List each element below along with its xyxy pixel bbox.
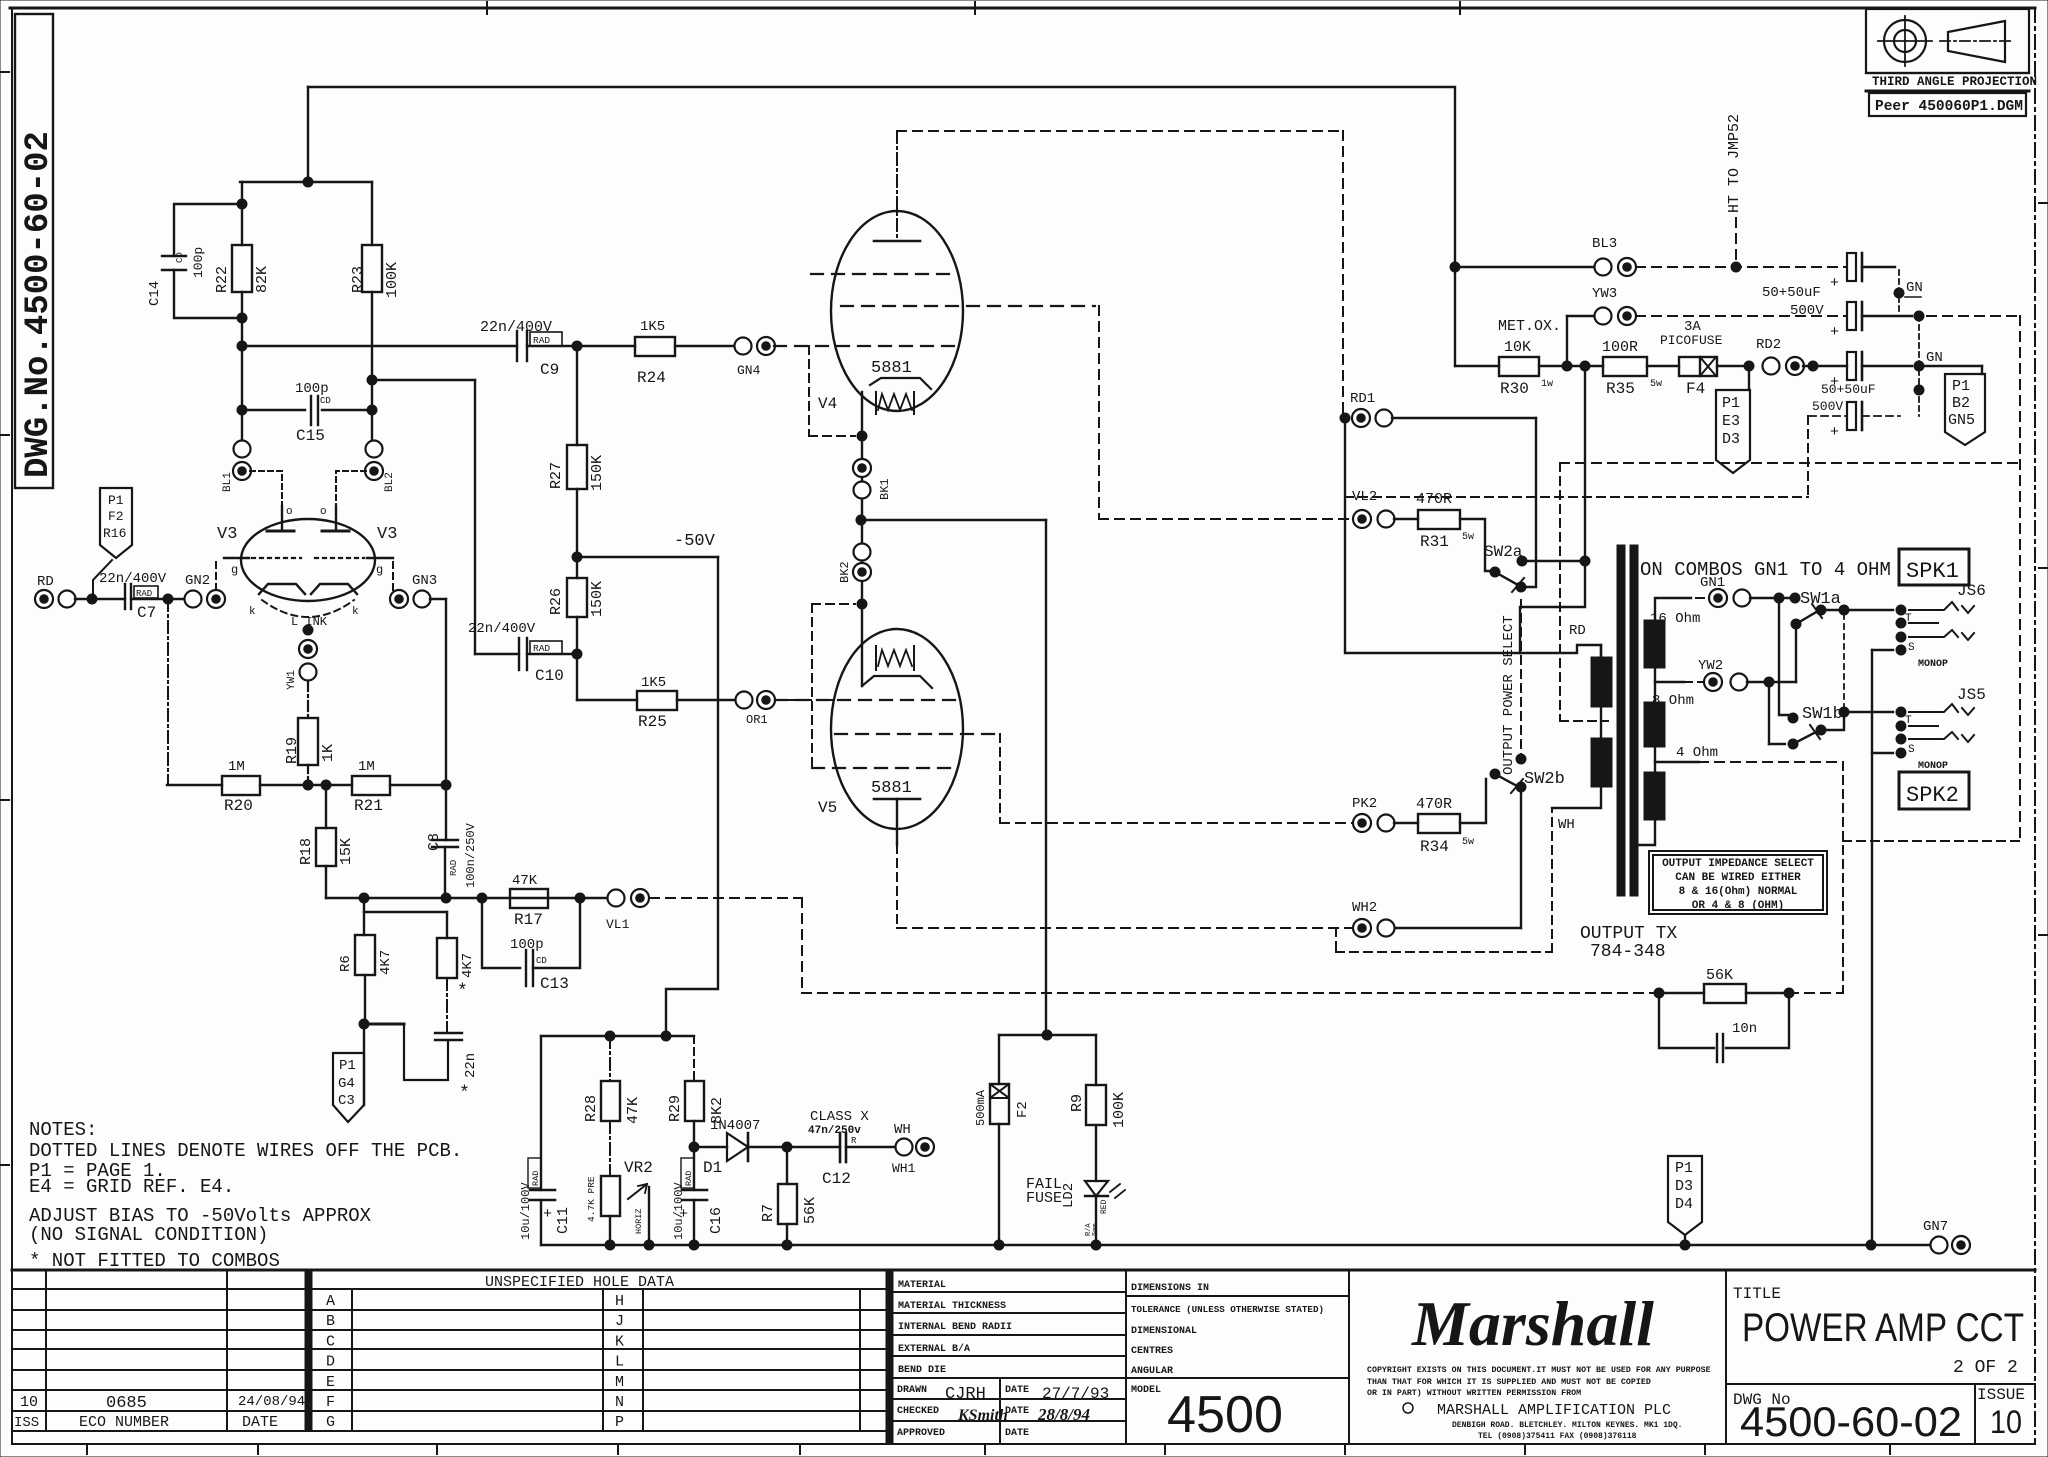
svg-text:RD2: RD2 [1756, 337, 1781, 353]
svg-text:HORIZ: HORIZ [634, 1208, 644, 1234]
svg-text:500mA: 500mA [974, 1089, 988, 1126]
svg-text:R17: R17 [514, 911, 543, 929]
svg-text:INTERNAL BEND RADII: INTERNAL BEND RADII [898, 1322, 1012, 1333]
svg-text:NOTES:: NOTES: [29, 1119, 97, 1141]
svg-text:DRAWN: DRAWN [897, 1385, 927, 1396]
svg-text:VL2: VL2 [1352, 489, 1377, 505]
svg-text:5w: 5w [1650, 379, 1662, 390]
svg-text:22n/400V: 22n/400V [468, 621, 536, 637]
svg-text:1M: 1M [228, 759, 245, 775]
svg-text:MARSHALL AMPLIFICATION PLC: MARSHALL AMPLIFICATION PLC [1437, 1402, 1671, 1419]
svg-text:150K: 150K [589, 455, 606, 491]
svg-text:OR 4 & 8 (OHM): OR 4 & 8 (OHM) [1692, 900, 1784, 912]
svg-text:MONOP: MONOP [1918, 761, 1948, 772]
svg-text:C12: C12 [822, 1170, 851, 1188]
svg-text:CD: CD [175, 252, 185, 263]
svg-text:100p: 100p [510, 937, 544, 953]
svg-text:GN2: GN2 [185, 573, 210, 589]
svg-text:22n/400V: 22n/400V [99, 571, 167, 587]
svg-text:C14: C14 [147, 281, 163, 306]
svg-text:DATE: DATE [1005, 1385, 1029, 1396]
svg-text:OUTPUT IMPEDANCE SELECT: OUTPUT IMPEDANCE SELECT [1662, 858, 1814, 870]
svg-text:GN7: GN7 [1923, 1219, 1948, 1235]
svg-text:100R: 100R [1602, 339, 1638, 356]
svg-text:24/08/94: 24/08/94 [238, 1394, 305, 1410]
svg-text:EXTERNAL B/A: EXTERNAL B/A [898, 1343, 970, 1355]
svg-text:COPYRIGHT EXISTS ON THIS DOCUM: COPYRIGHT EXISTS ON THIS DOCUMENT.IT MUS… [1367, 1366, 1711, 1375]
svg-text:UNSPECIFIED HOLE DATA: UNSPECIFIED HOLE DATA [485, 1274, 674, 1291]
svg-text:50+50uF: 50+50uF [1762, 285, 1821, 301]
svg-text:FUSE: FUSE [1026, 1190, 1062, 1207]
svg-text:P1: P1 [339, 1058, 356, 1074]
svg-text:C8: C8 [426, 833, 443, 851]
svg-text:ISS: ISS [14, 1415, 39, 1431]
svg-text:50+50uF: 50+50uF [1821, 382, 1876, 397]
svg-text:+: + [1830, 275, 1839, 292]
svg-text:CAN BE WIRED EITHER: CAN BE WIRED EITHER [1675, 872, 1801, 884]
svg-text:R35: R35 [1606, 380, 1635, 398]
svg-text:g: g [231, 563, 238, 577]
svg-text:SPK2: SPK2 [1906, 783, 1959, 808]
svg-text:TEL (0908)375411 FAX (0908)376: TEL (0908)375411 FAX (0908)376118 [1478, 1432, 1637, 1441]
svg-text:MONOP: MONOP [1918, 659, 1948, 670]
svg-text:R21: R21 [354, 797, 383, 815]
svg-text:22n: 22n [463, 1053, 479, 1078]
svg-text:WH: WH [894, 1122, 911, 1138]
svg-text:10K: 10K [1504, 339, 1531, 356]
svg-text:VL1: VL1 [606, 917, 630, 932]
svg-text:R9: R9 [1069, 1094, 1086, 1112]
svg-text:k: k [352, 606, 359, 618]
svg-text:ISSUE: ISSUE [1977, 1386, 2025, 1404]
svg-text:F2: F2 [1015, 1101, 1031, 1118]
svg-text:RAD: RAD [449, 860, 459, 876]
svg-text:ECO NUMBER: ECO NUMBER [79, 1414, 169, 1431]
svg-text:R23: R23 [350, 266, 367, 293]
svg-text:WH1: WH1 [892, 1161, 916, 1176]
svg-text:10: 10 [20, 1394, 38, 1411]
svg-text:82K: 82K [254, 266, 271, 293]
svg-text:V3: V3 [377, 525, 397, 544]
svg-text:o: o [286, 506, 293, 518]
svg-text:C: C [326, 1333, 335, 1350]
svg-text:B: B [326, 1313, 335, 1330]
svg-text:T: T [1905, 715, 1912, 727]
svg-text:PICOFUSE: PICOFUSE [1660, 333, 1723, 348]
svg-text:C16: C16 [708, 1207, 725, 1234]
svg-text:MET.OX.: MET.OX. [1498, 318, 1561, 335]
svg-text:V5: V5 [818, 799, 837, 817]
svg-text:TOLERANCE (UNLESS OTHERWISE ST: TOLERANCE (UNLESS OTHERWISE STATED) [1131, 1304, 1324, 1315]
svg-text:R20: R20 [224, 797, 253, 815]
svg-text:R29: R29 [667, 1095, 684, 1122]
svg-text:G4: G4 [338, 1076, 355, 1092]
svg-text:1K5: 1K5 [640, 319, 665, 335]
svg-text:DENBIGH ROAD. BLETCHLEY. MILTO: DENBIGH ROAD. BLETCHLEY. MILTON KEYNES. … [1452, 1421, 1682, 1430]
svg-text:ANGULAR: ANGULAR [1131, 1366, 1173, 1377]
svg-text:GN4: GN4 [737, 363, 761, 378]
svg-text:R24: R24 [637, 369, 666, 387]
svg-text:100p: 100p [191, 247, 206, 278]
svg-text:SW1b: SW1b [1802, 705, 1843, 724]
svg-text:16 Ohm: 16 Ohm [1650, 611, 1700, 627]
svg-text:5w: 5w [1462, 532, 1474, 543]
svg-text:E4 = GRID REF. E4.: E4 = GRID REF. E4. [29, 1176, 234, 1198]
svg-text:*: * [457, 982, 468, 1002]
svg-text:CLASS X: CLASS X [810, 1109, 869, 1125]
svg-text:GN5: GN5 [1948, 412, 1975, 429]
svg-text:R22: R22 [214, 266, 231, 293]
svg-text:g: g [376, 563, 383, 577]
svg-text:OR IN PART) WITHOUT WRITTEN PE: OR IN PART) WITHOUT WRITTEN PERMISSION F… [1367, 1388, 1581, 1398]
svg-text:56K: 56K [802, 1197, 819, 1224]
svg-text:V3: V3 [217, 525, 237, 544]
svg-text:M: M [615, 1374, 624, 1391]
svg-text:BK1: BK1 [878, 478, 892, 500]
svg-text:YW3: YW3 [1592, 286, 1617, 302]
svg-text:YW2: YW2 [1698, 658, 1723, 674]
svg-text:100K: 100K [384, 262, 401, 298]
svg-text:R18: R18 [298, 838, 315, 865]
svg-text:P1: P1 [1675, 1160, 1693, 1177]
svg-text:56K: 56K [1706, 967, 1733, 984]
svg-text:RD: RD [37, 574, 54, 590]
svg-text:47K: 47K [512, 873, 538, 889]
svg-text:C13: C13 [540, 975, 569, 993]
svg-text:THIRD ANGLE PROJECTION: THIRD ANGLE PROJECTION [1872, 75, 2037, 89]
svg-text:1M: 1M [358, 759, 375, 775]
svg-text:DOTTED LINES DENOTE WIRES OFF: DOTTED LINES DENOTE WIRES OFF THE PCB. [29, 1140, 462, 1162]
svg-text:10u/100V: 10u/100V [672, 1182, 686, 1240]
svg-text:PK2: PK2 [1352, 796, 1377, 812]
svg-text:JS6: JS6 [1957, 582, 1986, 600]
svg-text:WH2: WH2 [1352, 900, 1377, 916]
svg-text:5881: 5881 [871, 779, 912, 798]
svg-text:4K7: 4K7 [378, 950, 394, 975]
svg-text:SW2a: SW2a [1484, 543, 1523, 561]
svg-text:C3: C3 [338, 1093, 355, 1109]
svg-text:28/8/94: 28/8/94 [1037, 1405, 1090, 1424]
svg-text:CD: CD [536, 956, 547, 966]
svg-text:+: + [1830, 424, 1839, 441]
svg-text:TITLE: TITLE [1733, 1285, 1781, 1303]
svg-text:SW2b: SW2b [1524, 770, 1565, 789]
svg-text:4500: 4500 [1167, 1386, 1283, 1444]
svg-text:R34: R34 [1420, 838, 1449, 856]
svg-text:R30: R30 [1500, 380, 1529, 398]
svg-text:OUTPUT POWER SELECT: OUTPUT POWER SELECT [1501, 615, 1517, 775]
svg-text:100K: 100K [1111, 1092, 1128, 1128]
svg-text:8 Ohm: 8 Ohm [1652, 693, 1694, 709]
svg-text:D1: D1 [703, 1159, 722, 1177]
svg-text:T: T [1905, 613, 1912, 625]
svg-text:R6: R6 [338, 955, 354, 972]
svg-text:C15: C15 [296, 427, 325, 445]
svg-text:R28: R28 [583, 1095, 600, 1122]
svg-text:P1: P1 [1722, 395, 1740, 412]
svg-text:2 OF 2: 2 OF 2 [1953, 1358, 2018, 1378]
svg-text:4K7: 4K7 [460, 953, 476, 978]
svg-text:DIMENSIONAL: DIMENSIONAL [1131, 1326, 1197, 1337]
svg-text:RAD: RAD [533, 643, 550, 654]
svg-text:5mm: 5mm [1092, 1223, 1100, 1236]
svg-text:P1: P1 [1952, 378, 1970, 395]
svg-text:Marshall: Marshall [1411, 1288, 1654, 1359]
svg-text:100p: 100p [295, 381, 329, 397]
svg-text:LD2: LD2 [1061, 1183, 1077, 1208]
svg-text:10: 10 [1990, 1404, 2022, 1440]
svg-text:D: D [326, 1354, 335, 1371]
svg-text:POWER AMP CCT: POWER AMP CCT [1742, 1306, 2024, 1350]
svg-text:R31: R31 [1420, 533, 1449, 551]
svg-text:B2: B2 [1952, 395, 1970, 412]
svg-text:10u/100V: 10u/100V [519, 1182, 533, 1240]
svg-text:A: A [326, 1293, 335, 1310]
svg-text:150K: 150K [589, 581, 606, 617]
svg-text:F2: F2 [108, 509, 124, 524]
svg-text:C10: C10 [535, 667, 564, 685]
svg-text:GN: GN [1906, 280, 1923, 296]
svg-text:P1: P1 [108, 493, 124, 508]
svg-text:(NO SIGNAL CONDITION): (NO SIGNAL CONDITION) [29, 1224, 268, 1246]
svg-text:CJRH: CJRH [945, 1385, 986, 1404]
svg-text:k: k [249, 606, 256, 618]
svg-text:100n/250V: 100n/250V [464, 822, 478, 888]
svg-text:H: H [615, 1293, 624, 1310]
svg-text:8 & 16(Ohm) NORMAL: 8 & 16(Ohm) NORMAL [1679, 886, 1798, 898]
svg-text:R: R [851, 1136, 857, 1146]
svg-text:V4: V4 [818, 395, 837, 413]
svg-text:CHECKED: CHECKED [897, 1406, 939, 1417]
svg-text:RD: RD [1569, 623, 1586, 639]
svg-text:APPROVED: APPROVED [897, 1428, 945, 1439]
svg-text:*: * [459, 1084, 470, 1104]
svg-text:R19: R19 [284, 737, 301, 764]
svg-text:DATE: DATE [242, 1414, 278, 1431]
svg-text:F4: F4 [1686, 380, 1705, 398]
svg-text:1K5: 1K5 [641, 675, 666, 691]
svg-text:+: + [1830, 324, 1839, 341]
svg-text:KSmith: KSmith [957, 1407, 1008, 1424]
svg-text:BEND DIE: BEND DIE [898, 1365, 946, 1376]
svg-text:-50V: -50V [674, 532, 716, 551]
svg-text:C9: C9 [540, 361, 559, 379]
svg-text:RD1: RD1 [1350, 391, 1375, 407]
svg-text:22n/400V: 22n/400V [480, 319, 552, 336]
svg-text:470R: 470R [1416, 796, 1452, 813]
svg-text:GN: GN [1926, 350, 1943, 366]
svg-text:RED: RED [1100, 1199, 1109, 1214]
svg-text:S: S [1908, 744, 1915, 756]
svg-text:WH: WH [1558, 817, 1575, 833]
svg-text:Peer 450060P1.DGM: Peer 450060P1.DGM [1875, 99, 2023, 115]
svg-text:784-348: 784-348 [1590, 942, 1666, 962]
svg-text:ON COMBOS GN1 TO 4 OHM: ON COMBOS GN1 TO 4 OHM [1640, 559, 1891, 581]
svg-text:R27: R27 [548, 462, 565, 489]
svg-text:F: F [326, 1394, 335, 1411]
svg-text:E3: E3 [1722, 413, 1740, 430]
svg-text:THAN THAT FOR WHICH IT IS SUPP: THAN THAT FOR WHICH IT IS SUPPLIED AND M… [1367, 1378, 1651, 1387]
svg-text:4 Ohm: 4 Ohm [1676, 745, 1718, 761]
svg-text:YW1: YW1 [286, 670, 298, 690]
svg-text:C11: C11 [555, 1207, 572, 1234]
svg-text:GN3: GN3 [412, 573, 437, 589]
svg-text:1N4007: 1N4007 [710, 1118, 760, 1134]
svg-text:HT TO JMP52: HT TO JMP52 [1726, 114, 1743, 213]
svg-text:D3: D3 [1722, 431, 1740, 448]
svg-text:S: S [1908, 642, 1915, 654]
svg-text:R7: R7 [760, 1204, 777, 1222]
svg-text:4.7K PRE: 4.7K PRE [586, 1176, 597, 1222]
svg-text:DATE: DATE [1005, 1428, 1029, 1439]
svg-text:1w: 1w [1541, 379, 1553, 390]
svg-text:47K: 47K [625, 1097, 642, 1124]
svg-text:5w: 5w [1462, 837, 1474, 848]
svg-text:10n: 10n [1732, 1021, 1757, 1037]
svg-text:OUTPUT TX: OUTPUT TX [1580, 924, 1677, 944]
svg-text:15K: 15K [338, 838, 355, 865]
svg-text:R16: R16 [103, 526, 126, 541]
svg-text:BL3: BL3 [1592, 236, 1617, 252]
svg-text:CD: CD [320, 396, 331, 406]
svg-text:C7: C7 [137, 604, 156, 622]
svg-text:RAD: RAD [136, 589, 152, 599]
svg-text:K: K [615, 1333, 624, 1350]
svg-text:P: P [615, 1414, 624, 1431]
svg-text:DATE: DATE [1005, 1406, 1029, 1417]
svg-text:VR2: VR2 [624, 1159, 653, 1177]
svg-text:R25: R25 [638, 713, 667, 731]
svg-text:DIMENSIONS IN: DIMENSIONS IN [1131, 1283, 1209, 1294]
svg-text:BK2: BK2 [838, 561, 852, 583]
svg-text:OR1: OR1 [746, 713, 768, 727]
svg-text:MODEL: MODEL [1131, 1385, 1161, 1396]
svg-text:0685: 0685 [106, 1394, 147, 1413]
svg-text:SPK1: SPK1 [1906, 559, 1959, 584]
svg-text:4500-60-02: 4500-60-02 [1740, 1398, 1962, 1445]
svg-text:G: G [326, 1414, 335, 1431]
svg-text:JS5: JS5 [1957, 686, 1986, 704]
svg-text:RAD: RAD [533, 335, 550, 346]
svg-text:1K: 1K [320, 744, 337, 762]
svg-text:5881: 5881 [871, 359, 912, 378]
svg-text:+: + [543, 1206, 552, 1223]
svg-text:N: N [615, 1394, 624, 1411]
svg-text:BL2: BL2 [384, 472, 396, 492]
svg-text:27/7/93: 27/7/93 [1042, 1385, 1109, 1403]
svg-text:470R: 470R [1416, 491, 1452, 508]
svg-text:DWG.No.4500-60-02: DWG.No.4500-60-02 [20, 131, 58, 478]
svg-text:J: J [615, 1313, 624, 1330]
svg-text:CENTRES: CENTRES [1131, 1346, 1173, 1357]
svg-text:E: E [326, 1374, 335, 1391]
svg-text:o: o [320, 506, 327, 518]
svg-text:D4: D4 [1675, 1196, 1693, 1213]
svg-text:D3: D3 [1675, 1178, 1693, 1195]
svg-text:L: L [615, 1354, 624, 1371]
svg-text:500V: 500V [1812, 399, 1843, 414]
svg-text:MATERIAL: MATERIAL [898, 1280, 946, 1291]
svg-text:BL1: BL1 [222, 472, 234, 492]
svg-text:MATERIAL THICKNESS: MATERIAL THICKNESS [898, 1301, 1006, 1312]
svg-text:R26: R26 [548, 588, 565, 615]
